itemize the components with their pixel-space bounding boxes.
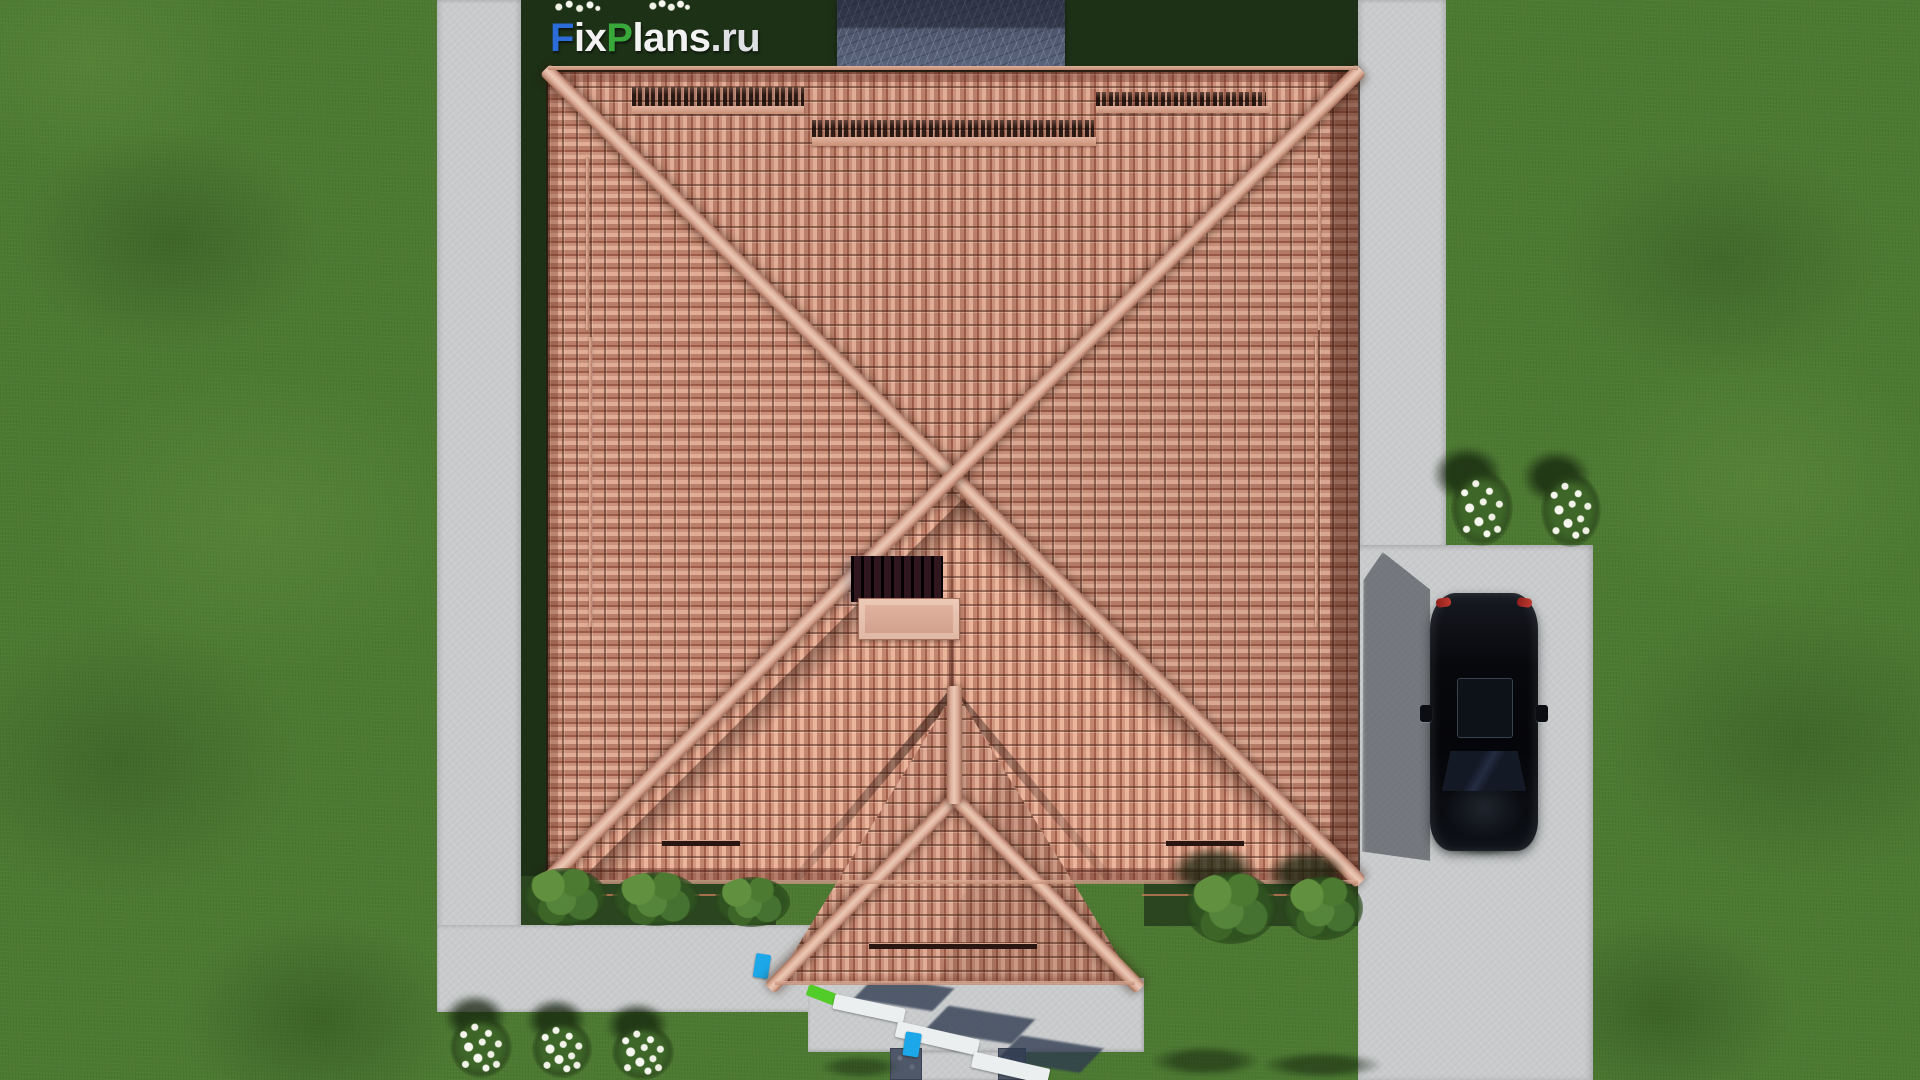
flower-bush: [1541, 473, 1601, 547]
chimney-shadow: [851, 556, 943, 602]
logo-segment: F: [550, 16, 574, 60]
snow-guard-right-2: [1315, 337, 1318, 627]
hood: [1438, 791, 1530, 845]
windshield: [1442, 751, 1526, 791]
blue-planter-1: [753, 953, 772, 979]
flower-bush: [612, 1024, 674, 1080]
roof-vent-2: [812, 120, 1094, 138]
roof-seam: [949, 490, 954, 695]
shrub: [612, 872, 700, 926]
left-path: [437, 0, 521, 1012]
porch-roof: [775, 690, 1135, 983]
flower-bush: [450, 1016, 512, 1078]
logo-segment: ix: [574, 16, 606, 60]
blue-planter-2: [902, 1031, 922, 1057]
mirror-left: [1420, 705, 1432, 722]
flowers-top-edge: [646, 0, 692, 12]
taillight-left: [1435, 597, 1451, 608]
ground-shadow: [1150, 1046, 1260, 1076]
roof-vent-3: [1096, 92, 1266, 107]
car: [1430, 593, 1538, 851]
snow-guard-left-2: [589, 337, 592, 627]
shrub: [1185, 872, 1277, 944]
aerial-render: FixPlans.ru: [0, 0, 1920, 1080]
roof-vent-1: [632, 87, 804, 107]
shrub: [714, 877, 790, 927]
shrub: [1283, 876, 1363, 940]
shrub: [523, 868, 607, 926]
snow-guard-bottom-left: [662, 840, 740, 846]
mirror-right: [1536, 705, 1548, 722]
chimney-cap: [858, 598, 960, 640]
ground-shadow: [820, 1056, 900, 1078]
snow-guard-right-1: [1318, 158, 1321, 330]
watermark-logo: FixPlans.ru: [550, 16, 760, 61]
house-shadow-left: [518, 0, 548, 928]
eave-trim-top: [548, 66, 1358, 70]
flower-bush: [1451, 470, 1513, 546]
flowers-top-edge: [551, 0, 603, 14]
roof-vent-bar-1: [632, 106, 804, 114]
taillight-right: [1516, 597, 1532, 608]
porch-ridge: [947, 686, 962, 804]
logo-segment: .ru: [711, 16, 761, 60]
sunroof: [1457, 678, 1513, 738]
roof-vent-bar-2: [812, 137, 1096, 146]
snow-guard-left-1: [586, 158, 589, 330]
flower-bush: [532, 1020, 592, 1078]
roof-vent-bar-3: [1096, 106, 1270, 113]
logo-segment: lans: [632, 16, 710, 60]
ground-shadow: [1262, 1052, 1382, 1078]
logo-segment: P: [606, 16, 632, 60]
house-roof: [548, 72, 1358, 880]
porch-snow-guard: [869, 943, 1037, 949]
rear-terrace: [837, 0, 1065, 70]
porch-eave-trim: [775, 981, 1135, 985]
